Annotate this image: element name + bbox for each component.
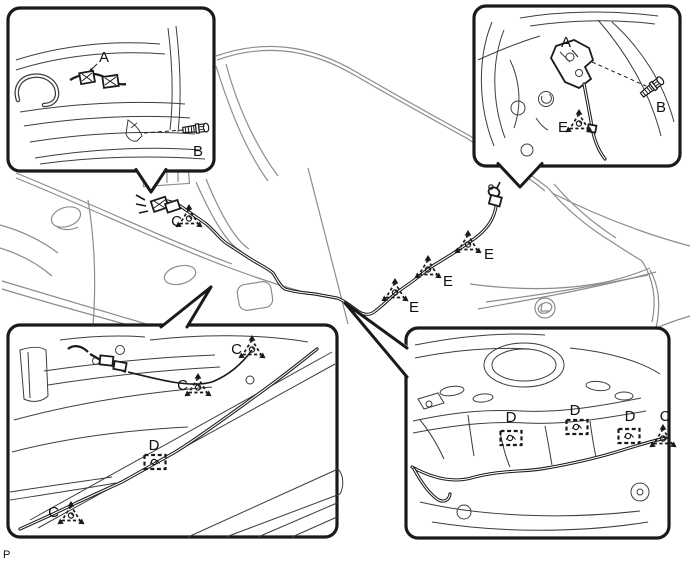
callout-label-c-bottom: C [48, 504, 59, 521]
callout-label-c-top: C [231, 341, 242, 358]
callout-label-a-top-right: A [561, 34, 571, 51]
harness-connector-front [136, 195, 180, 213]
clamp-marker-triangle-e3 [380, 278, 411, 304]
callout-label-e1: E [484, 246, 494, 263]
lexus-logo [535, 298, 555, 318]
inset-top-left: A B [8, 8, 214, 193]
callout-label-d3: D [625, 408, 636, 425]
callout-label-b-top-left: B [193, 143, 203, 160]
callout-label-c-mid: C [177, 377, 188, 394]
callout-label-e2: E [443, 273, 453, 290]
callout-label-d2: D [570, 402, 581, 419]
callout-label-d1: D [506, 409, 517, 426]
service-manual-figure: C E E E [0, 0, 691, 564]
side-mirror-left [49, 203, 83, 230]
callout-label-c-br: C [660, 408, 671, 425]
wire-routing-diagram: C E E E [0, 0, 691, 564]
callout-label-e3: E [409, 299, 419, 316]
main-view-callouts: C E E E [171, 204, 494, 316]
callout-label-a-top-left: A [99, 49, 109, 66]
callout-label-c-main: C [171, 213, 182, 230]
side-mirror-right [162, 262, 197, 287]
inset-bottom-right: D D D C [345, 303, 678, 538]
inset-top-right: A B E [474, 6, 680, 187]
inset-bottom-left: C C D C [8, 286, 343, 537]
page-marker: P [3, 549, 10, 561]
inset-pointer-tail [345, 303, 407, 377]
callout-label-d: D [149, 437, 160, 454]
callout-label-e-top-right: E [558, 119, 568, 136]
harness-connector-rear [487, 182, 502, 206]
callout-label-b-top-right: B [656, 99, 666, 116]
